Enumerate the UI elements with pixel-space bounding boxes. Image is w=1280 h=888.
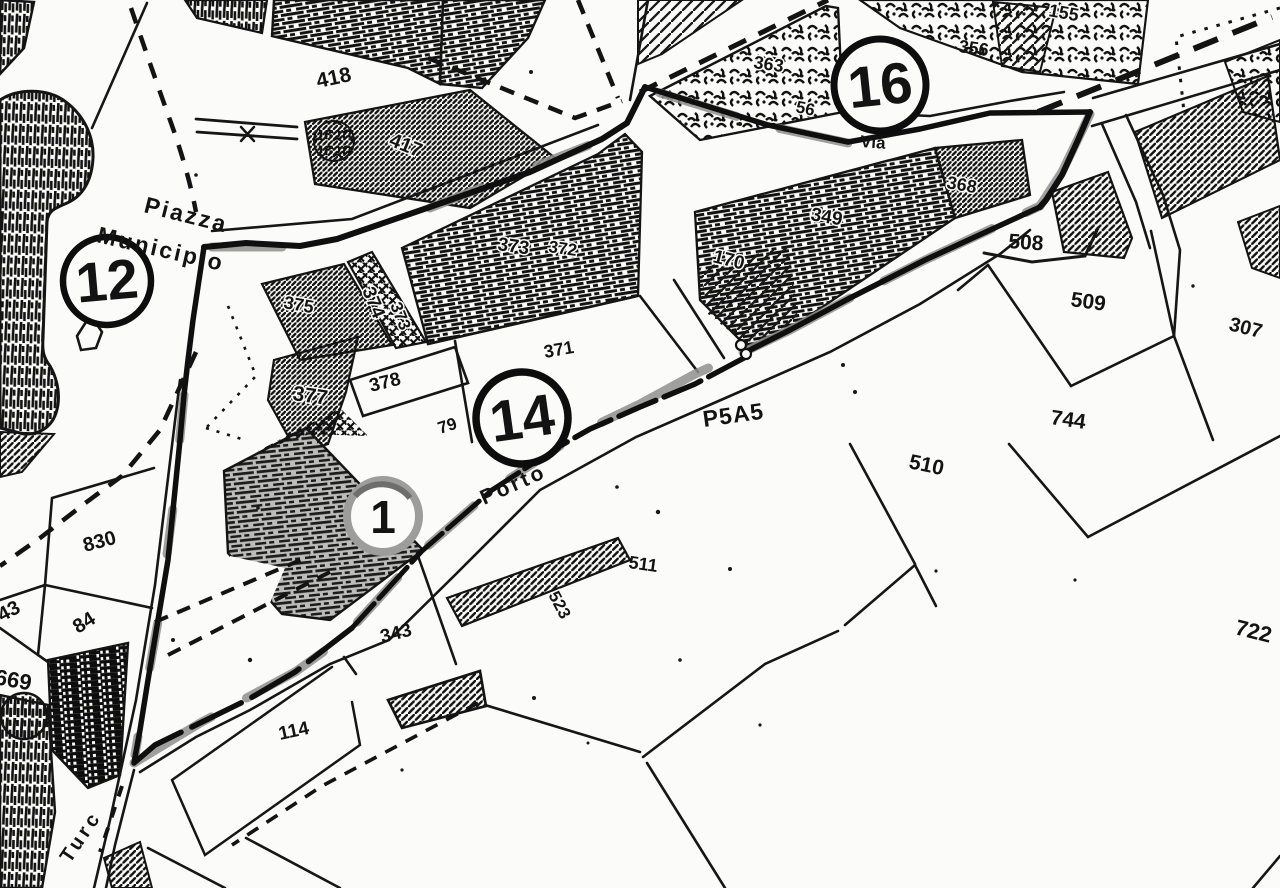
svg-text:16: 16 [845, 50, 916, 121]
svg-text:12: 12 [73, 246, 141, 314]
svg-text:744: 744 [1049, 406, 1087, 434]
svg-text:509: 509 [1069, 288, 1107, 316]
svg-text:56: 56 [794, 97, 816, 120]
svg-text:356: 356 [957, 36, 990, 60]
svg-text:372: 372 [547, 237, 578, 260]
svg-text:377: 377 [291, 382, 329, 410]
svg-text:373: 373 [496, 234, 530, 259]
svg-text:363: 363 [752, 52, 785, 76]
svg-text:511: 511 [627, 552, 659, 576]
svg-text:669: 669 [0, 664, 34, 695]
svg-text:14: 14 [486, 382, 559, 455]
svg-text:1: 1 [370, 491, 396, 543]
svg-text:508: 508 [1008, 230, 1045, 255]
svg-text:Via: Via [860, 132, 887, 153]
